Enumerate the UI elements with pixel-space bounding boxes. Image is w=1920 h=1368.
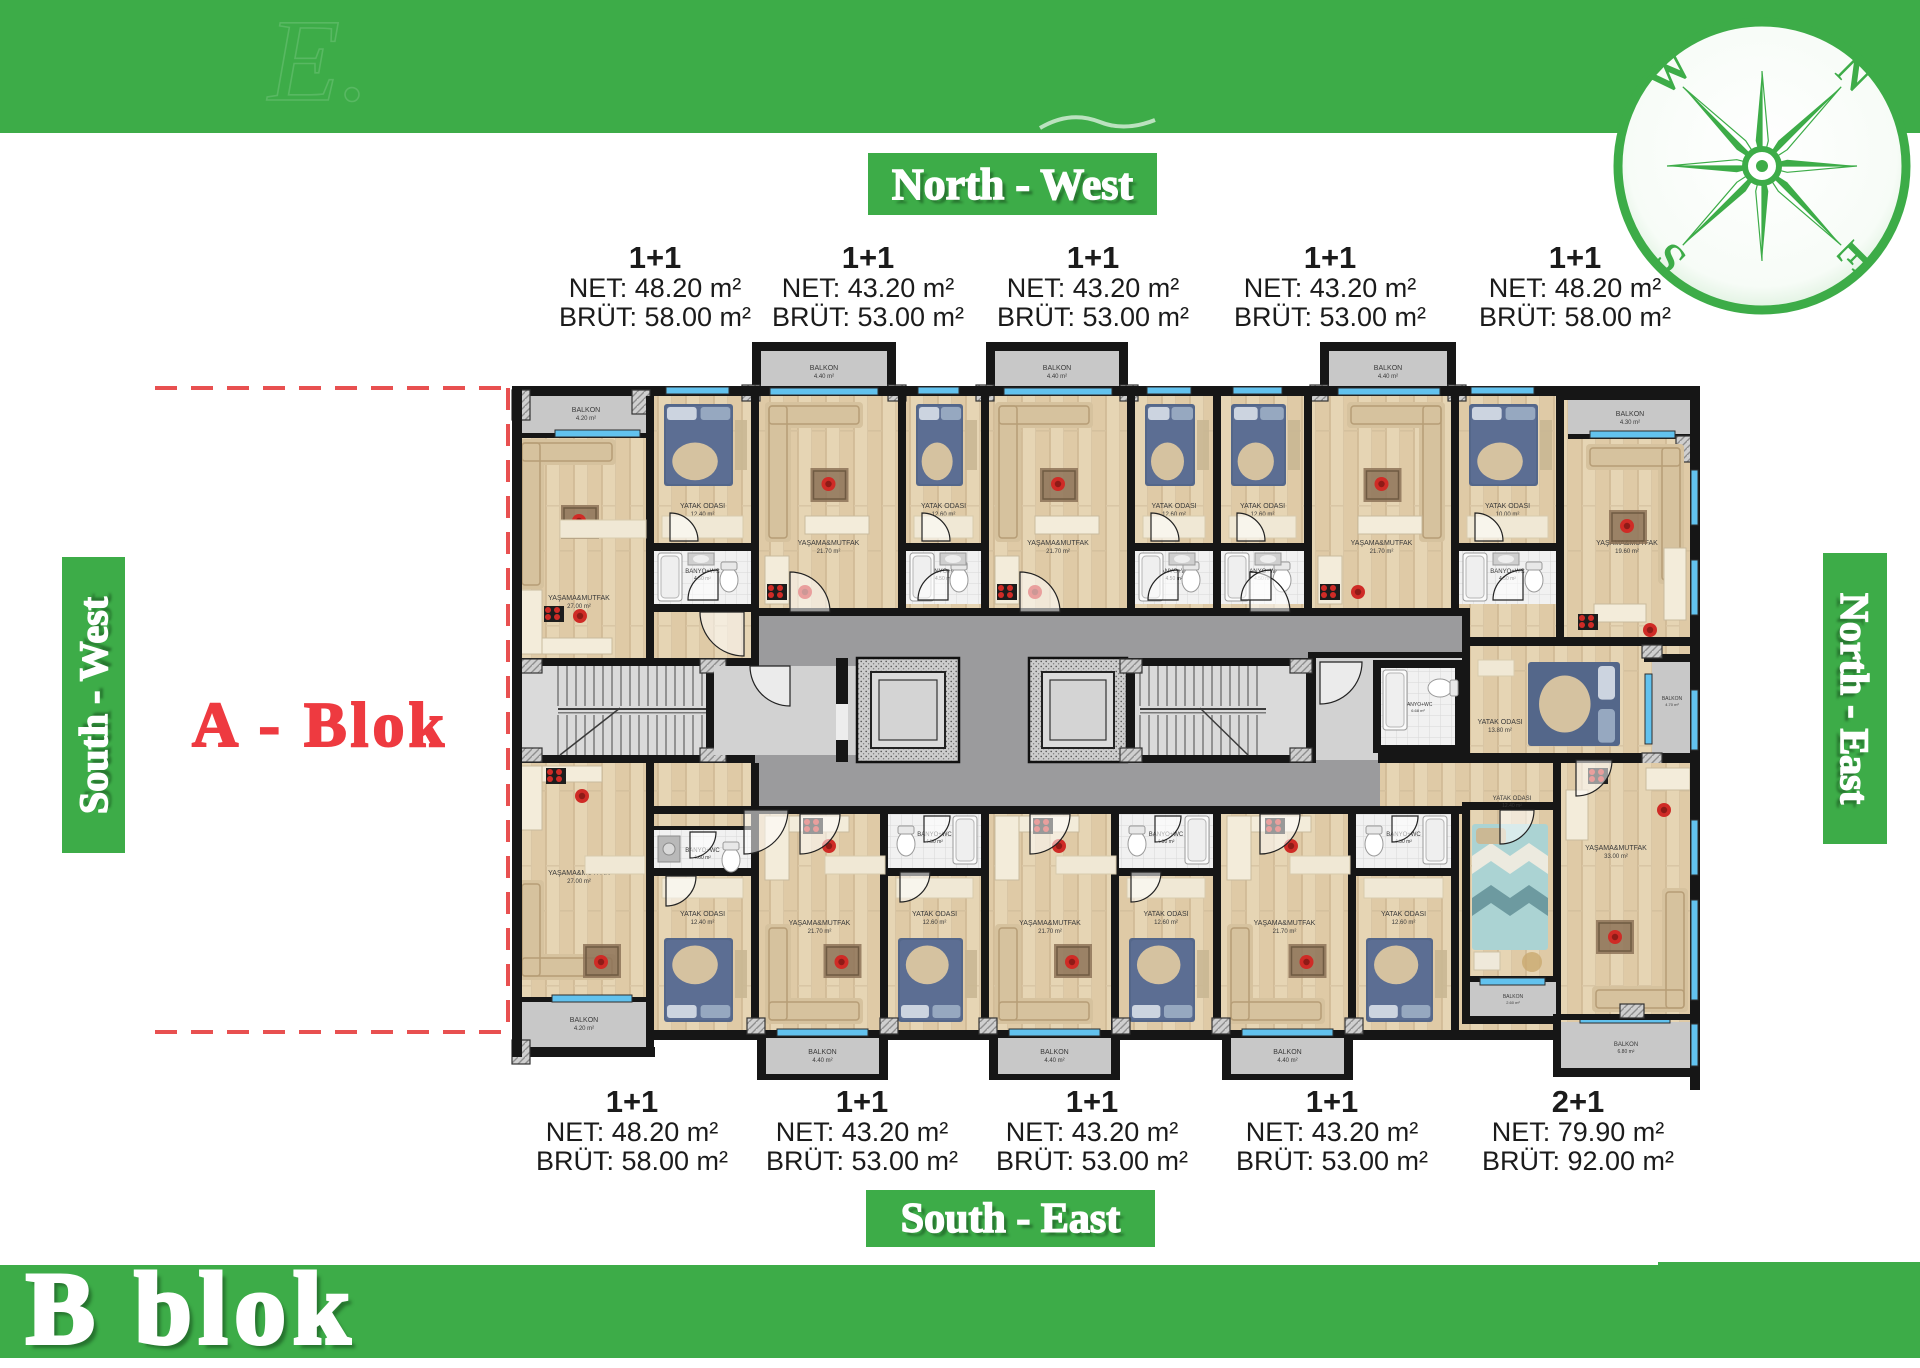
svg-text:4.30 m²: 4.30 m² <box>1620 420 1640 426</box>
svg-text:YAŞAMA&MUTFAK: YAŞAMA&MUTFAK <box>548 595 610 602</box>
svg-text:4.40 m²: 4.40 m² <box>814 374 834 380</box>
svg-text:YATAK ODASI: YATAK ODASI <box>1485 503 1530 510</box>
svg-text:BALKON: BALKON <box>1614 1042 1638 1048</box>
svg-text:YAŞAMA&MUTFAK: YAŞAMA&MUTFAK <box>798 540 860 547</box>
svg-text:BALKON: BALKON <box>1273 1049 1301 1056</box>
svg-text:4.20 m²: 4.20 m² <box>574 1026 594 1032</box>
svg-text:19.60 m²: 19.60 m² <box>1615 549 1639 555</box>
svg-text:4.40 m²: 4.40 m² <box>1277 1058 1297 1064</box>
svg-text:YATAK ODASI: YATAK ODASI <box>1143 911 1188 918</box>
svg-text:21.70 m²: 21.70 m² <box>808 929 832 935</box>
svg-text:YATAK ODASI: YATAK ODASI <box>1493 796 1532 802</box>
svg-text:YAŞAMA&MUTFAK: YAŞAMA&MUTFAK <box>1027 540 1089 547</box>
svg-text:YATAK ODASI: YATAK ODASI <box>1240 503 1285 510</box>
svg-text:21.70 m²: 21.70 m² <box>1273 929 1297 935</box>
svg-text:12.60 m²: 12.60 m² <box>923 920 947 926</box>
svg-text:4.40 m²: 4.40 m² <box>1044 1058 1064 1064</box>
svg-text:BALKON: BALKON <box>1040 1049 1068 1056</box>
svg-text:BALKON: BALKON <box>810 365 838 372</box>
svg-text:YATAK ODASI: YATAK ODASI <box>1381 911 1426 918</box>
svg-text:13.80 m²: 13.80 m² <box>1488 728 1512 734</box>
svg-text:4.40 m²: 4.40 m² <box>1378 374 1398 380</box>
svg-text:YAŞAMA&MUTFAK: YAŞAMA&MUTFAK <box>1019 920 1081 927</box>
svg-text:BALKON: BALKON <box>572 407 600 414</box>
svg-text:6.68 m²: 6.68 m² <box>1411 708 1425 713</box>
svg-text:YATAK ODASI: YATAK ODASI <box>680 503 725 510</box>
svg-text:21.70 m²: 21.70 m² <box>817 549 841 555</box>
svg-text:YAŞAMA&MUTFAK: YAŞAMA&MUTFAK <box>789 920 851 927</box>
svg-text:BALKON: BALKON <box>570 1017 598 1024</box>
svg-text:YATAK ODASI: YATAK ODASI <box>1151 503 1196 510</box>
svg-text:12.40 m²: 12.40 m² <box>1502 803 1522 809</box>
svg-text:4.20 m²: 4.20 m² <box>576 416 596 422</box>
svg-text:YAŞAMA&MUTFAK: YAŞAMA&MUTFAK <box>1254 920 1316 927</box>
svg-text:YAŞAMA&MUTFAK: YAŞAMA&MUTFAK <box>1585 845 1647 852</box>
svg-text:4.70 m²: 4.70 m² <box>1665 702 1679 707</box>
svg-text:21.70 m²: 21.70 m² <box>1046 549 1070 555</box>
svg-text:BALKON: BALKON <box>1374 365 1402 372</box>
svg-text:YATAK ODASI: YATAK ODASI <box>680 911 725 918</box>
svg-text:12.40 m²: 12.40 m² <box>691 920 715 926</box>
svg-text:4.40 m²: 4.40 m² <box>1047 374 1067 380</box>
svg-text:27.00 m²: 27.00 m² <box>567 879 591 885</box>
svg-text:21.70 m²: 21.70 m² <box>1038 929 1062 935</box>
svg-text:21.70 m²: 21.70 m² <box>1370 549 1394 555</box>
svg-text:YATAK ODASI: YATAK ODASI <box>921 503 966 510</box>
svg-text:2.60 m²: 2.60 m² <box>1506 1000 1520 1005</box>
svg-text:12.60 m²: 12.60 m² <box>1392 920 1416 926</box>
svg-text:YATAK ODASI: YATAK ODASI <box>1477 719 1522 726</box>
svg-text:BALKON: BALKON <box>808 1049 836 1056</box>
svg-text:12.60 m²: 12.60 m² <box>1154 920 1178 926</box>
svg-text:6.80 m²: 6.80 m² <box>1618 1049 1635 1055</box>
svg-text:33.00 m²: 33.00 m² <box>1604 854 1628 860</box>
svg-text:BALKON: BALKON <box>1043 365 1071 372</box>
svg-text:4.40 m²: 4.40 m² <box>812 1058 832 1064</box>
svg-text:YATAK ODASI: YATAK ODASI <box>912 911 957 918</box>
svg-text:BALKON: BALKON <box>1616 411 1644 418</box>
svg-text:YAŞAMA&MUTFAK: YAŞAMA&MUTFAK <box>1351 540 1413 547</box>
